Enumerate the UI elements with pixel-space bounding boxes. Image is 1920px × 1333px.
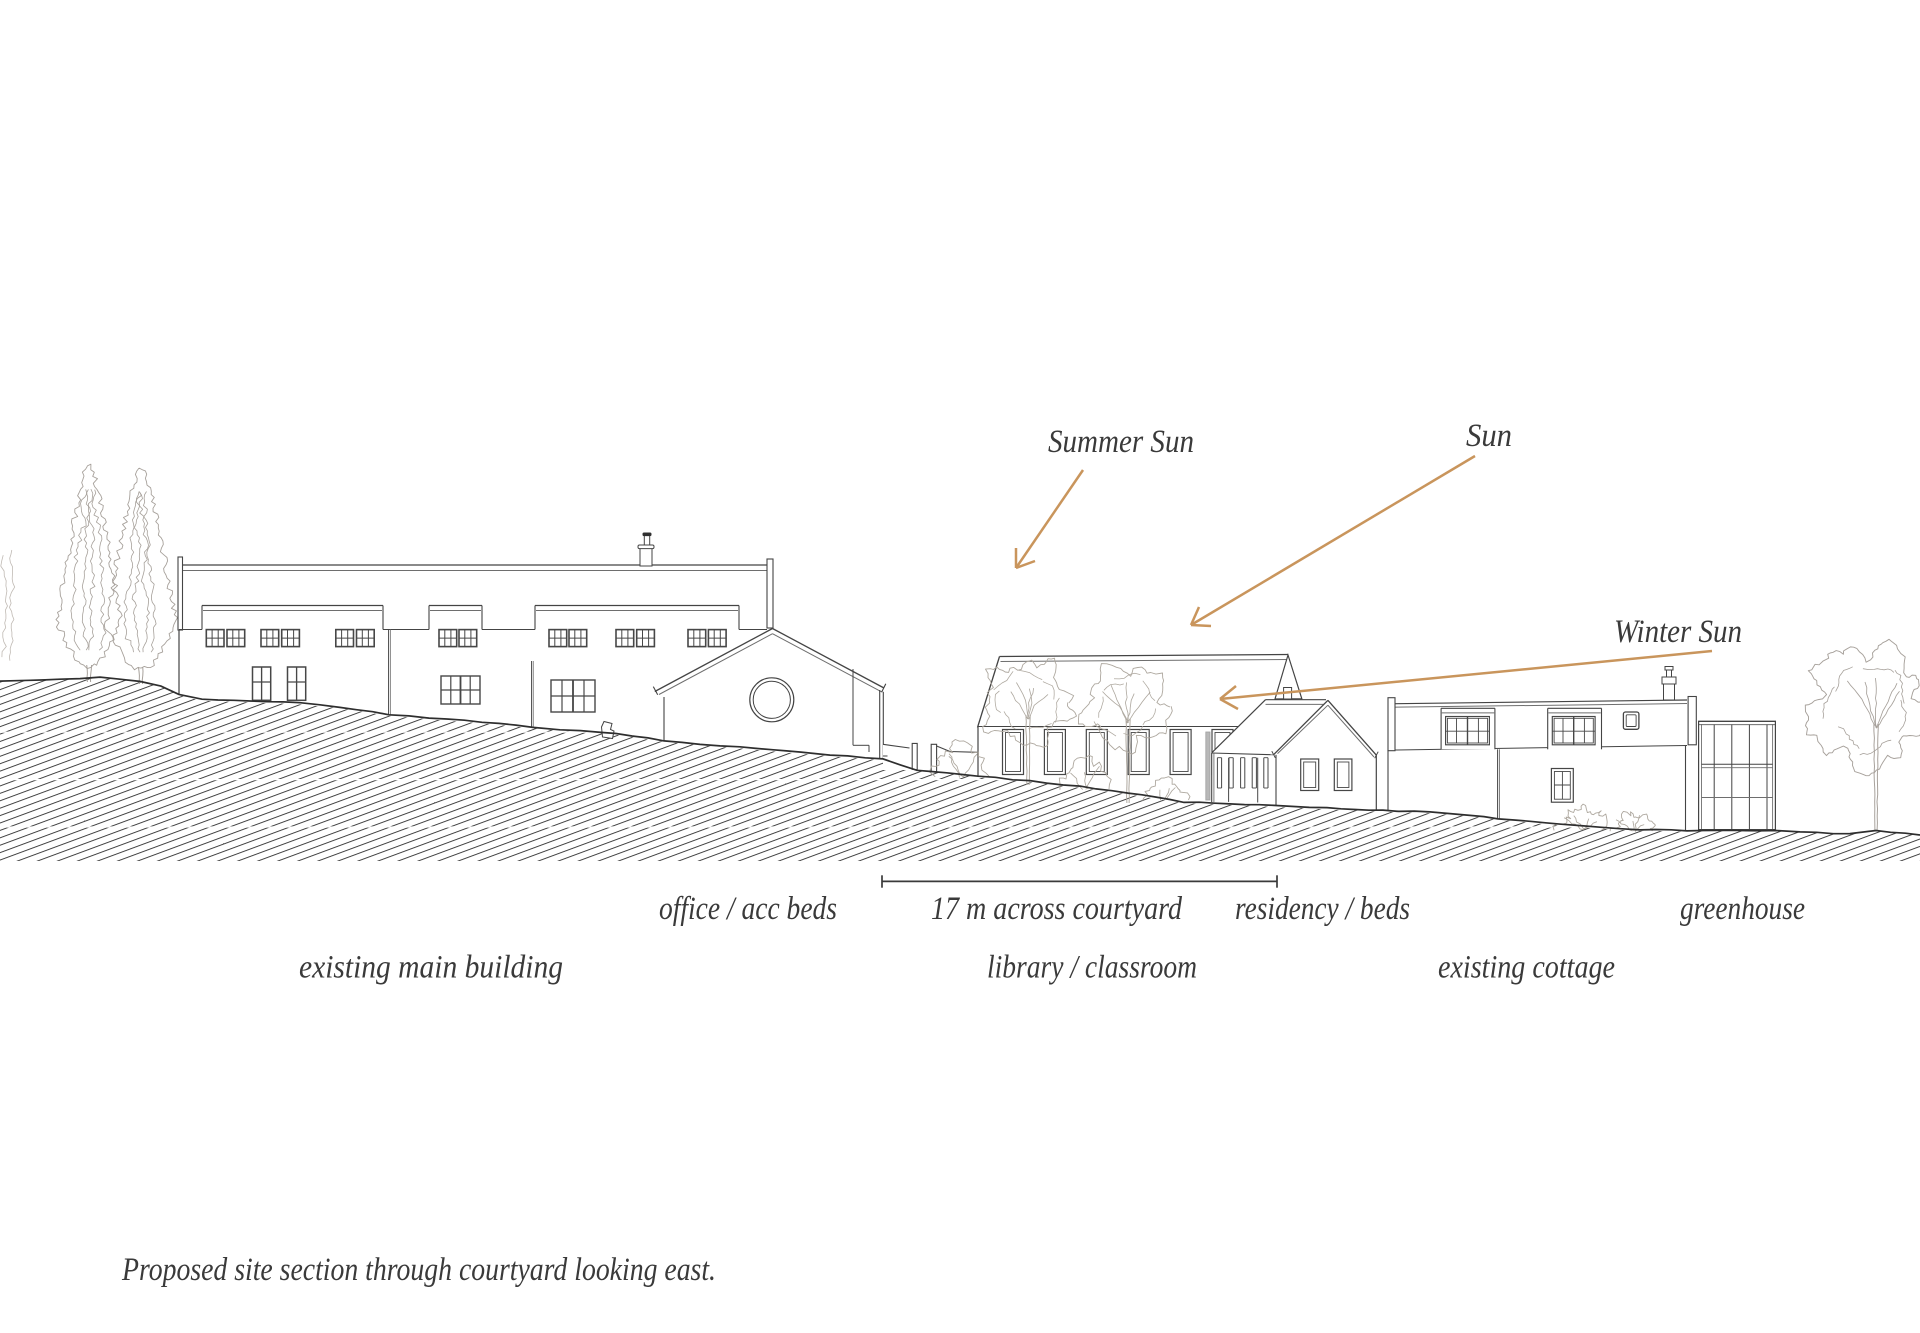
svg-text:greenhouse: greenhouse bbox=[1680, 891, 1805, 927]
svg-text:Sun: Sun bbox=[1466, 418, 1512, 454]
svg-text:existing cottage: existing cottage bbox=[1438, 950, 1615, 986]
svg-text:residency / beds: residency / beds bbox=[1235, 891, 1410, 927]
svg-text:Summer Sun: Summer Sun bbox=[1048, 424, 1194, 460]
svg-text:existing main building: existing main building bbox=[299, 950, 563, 986]
svg-text:Proposed site section through: Proposed site section through courtyard … bbox=[121, 1252, 716, 1288]
svg-text:office / acc beds: office / acc beds bbox=[659, 891, 837, 927]
svg-text:library / classroom: library / classroom bbox=[987, 950, 1197, 986]
svg-text:Winter Sun: Winter Sun bbox=[1614, 614, 1742, 650]
svg-text:17 m across courtyard: 17 m across courtyard bbox=[931, 891, 1182, 927]
